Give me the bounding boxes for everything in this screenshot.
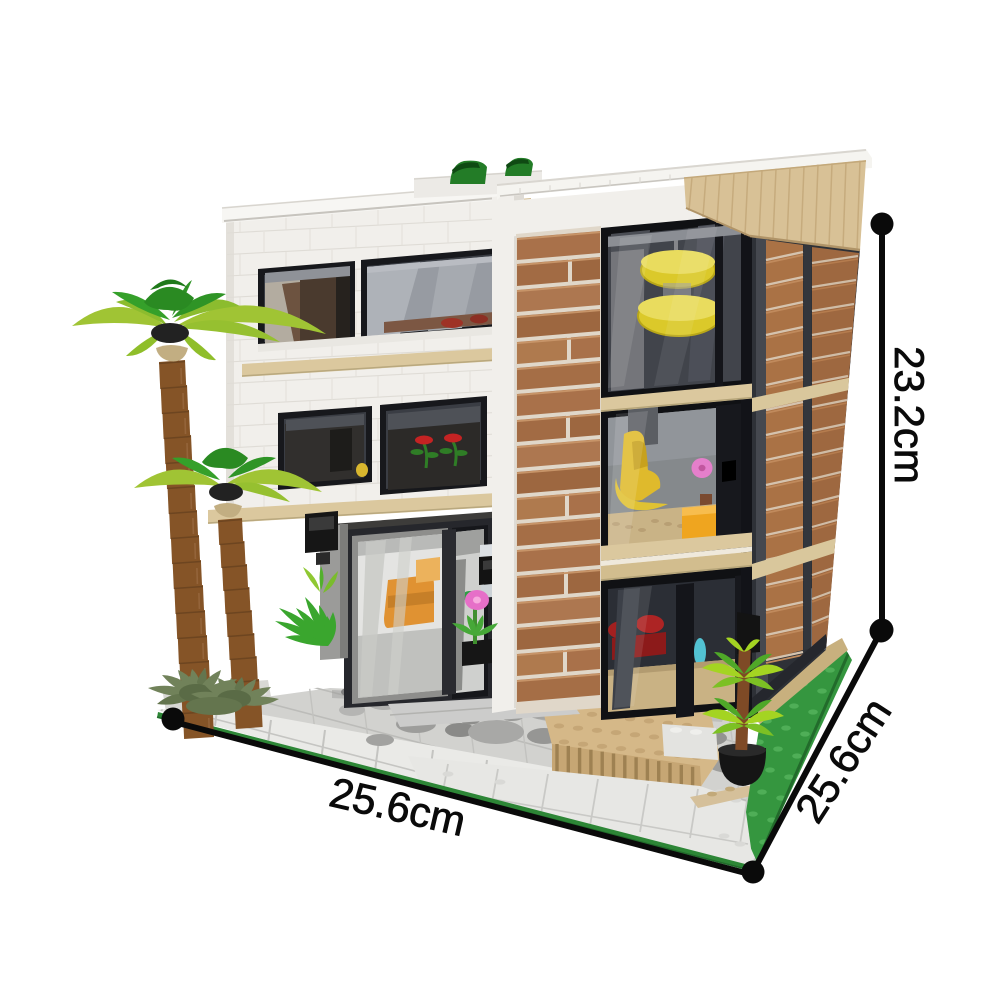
svg-text:23.2cm: 23.2cm [886, 346, 933, 484]
